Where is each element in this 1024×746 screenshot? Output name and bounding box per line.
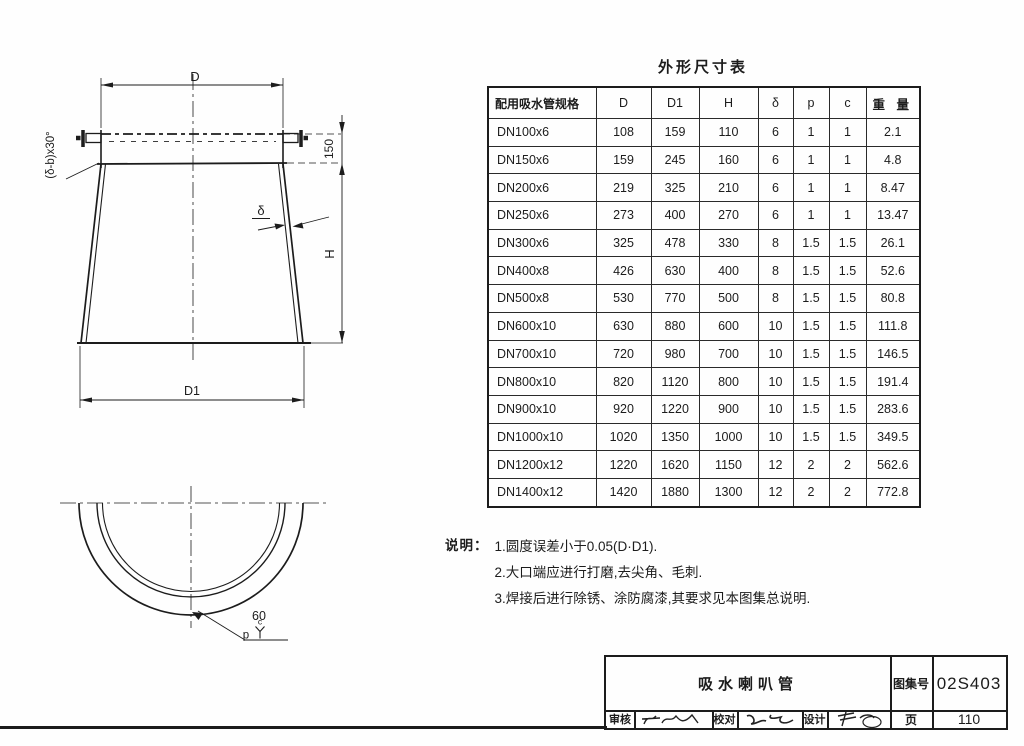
table-cell: 1.5 <box>793 423 829 451</box>
table-cell: 6 <box>758 174 793 202</box>
table-cell: DN900x10 <box>488 395 596 423</box>
table-cell: 1.5 <box>793 312 829 340</box>
table-cell: 400 <box>699 257 758 285</box>
table-cell: 273 <box>596 202 651 230</box>
table-cell: 26.1 <box>866 229 920 257</box>
table-cell: 108 <box>596 119 651 147</box>
table-cell: 13.47 <box>866 202 920 230</box>
design-label: 设计 <box>802 710 827 728</box>
table-cell: 478 <box>651 229 699 257</box>
signature-scribble <box>830 710 888 729</box>
table-cell: 900 <box>699 395 758 423</box>
size-table-body: DN100x61081591106112.1DN150x615924516061… <box>488 119 920 507</box>
table-cell: 12 <box>758 451 793 479</box>
table-cell: 1 <box>793 146 829 174</box>
table-cell: 500 <box>699 285 758 313</box>
signature-scribble <box>638 711 708 728</box>
table-cell: 1150 <box>699 451 758 479</box>
table-cell: DN250x6 <box>488 202 596 230</box>
table-cell: 146.5 <box>866 340 920 368</box>
table-cell: 1620 <box>651 451 699 479</box>
table-cell: 6 <box>758 202 793 230</box>
size-table-header-row: 配用吸水管规格DD1Hδpc重 量 <box>488 87 920 119</box>
table-column-header: D1 <box>651 87 699 119</box>
table-row: DN800x108201120800101.51.5191.4 <box>488 368 920 396</box>
atlas-number-value: 02S403 <box>932 657 1006 710</box>
design-signature <box>827 710 890 728</box>
table-column-header: δ <box>758 87 793 119</box>
left-stub <box>76 130 101 147</box>
table-row: DN200x62193252106118.47 <box>488 174 920 202</box>
table-cell: 8 <box>758 229 793 257</box>
table-cell: 770 <box>651 285 699 313</box>
table-cell: 1 <box>793 202 829 230</box>
table-cell: 159 <box>651 119 699 147</box>
review-signature <box>634 710 712 728</box>
atlas-number-label: 图集号 <box>890 657 932 710</box>
table-cell: 400 <box>651 202 699 230</box>
table-cell: 283.6 <box>866 395 920 423</box>
table-cell: 880 <box>651 312 699 340</box>
table-cell: 1880 <box>651 478 699 506</box>
table-cell: 4.8 <box>866 146 920 174</box>
table-cell: 191.4 <box>866 368 920 396</box>
chamfer-label: (δ-b)x30° <box>45 131 57 178</box>
table-cell: 270 <box>699 202 758 230</box>
table-row: DN300x632547833081.51.526.1 <box>488 229 920 257</box>
table-cell: 1000 <box>699 423 758 451</box>
table-cell: 800 <box>699 368 758 396</box>
table-cell: 1.5 <box>829 312 866 340</box>
table-cell: 1.5 <box>829 423 866 451</box>
page-number: 110 <box>932 710 1006 728</box>
table-cell: 10 <box>758 368 793 396</box>
table-cell: 6 <box>758 119 793 147</box>
table-cell: 1020 <box>596 423 651 451</box>
table-cell: 10 <box>758 340 793 368</box>
table-cell: DN1400x12 <box>488 478 596 506</box>
table-cell: 1 <box>829 174 866 202</box>
table-cell: DN150x6 <box>488 146 596 174</box>
table-column-header: c <box>829 87 866 119</box>
signature-scribble <box>741 711 799 728</box>
table-cell: 1.5 <box>829 368 866 396</box>
notes-block: 说明： 1.圆度误差小于0.05(D·D1).2.大口端应进行打磨,去尖角、毛刺… <box>445 534 810 612</box>
notes-label: 说明： <box>445 534 489 612</box>
table-cell: 1.5 <box>829 340 866 368</box>
dim-label-D: D <box>190 69 199 84</box>
table-cell: 210 <box>699 174 758 202</box>
table-row: DN1400x121420188013001222772.8 <box>488 478 920 506</box>
right-stub <box>283 130 308 147</box>
table-cell: 426 <box>596 257 651 285</box>
table-cell: 720 <box>596 340 651 368</box>
table-column-header: H <box>699 87 758 119</box>
dim-label-D1: D1 <box>184 384 200 398</box>
table-cell: 1.5 <box>793 285 829 313</box>
table-cell: DN400x8 <box>488 257 596 285</box>
table-cell: 1.5 <box>829 257 866 285</box>
table-cell: 2 <box>793 478 829 506</box>
table-cell: 111.8 <box>866 312 920 340</box>
table-cell: 1 <box>829 119 866 147</box>
table-row: DN100x61081591106112.1 <box>488 119 920 147</box>
table-cell: 920 <box>596 395 651 423</box>
table-cell: DN600x10 <box>488 312 596 340</box>
table-row: DN1200x121220162011501222562.6 <box>488 451 920 479</box>
note-item: 1.圆度误差小于0.05(D·D1). <box>495 534 811 560</box>
table-cell: 245 <box>651 146 699 174</box>
table-cell: 980 <box>651 340 699 368</box>
dim-label-150: 150 <box>322 139 336 159</box>
table-cell: 80.8 <box>866 285 920 313</box>
size-table: 配用吸水管规格DD1Hδpc重 量 DN100x61081591106112.1… <box>487 86 921 508</box>
table-cell: 52.6 <box>866 257 920 285</box>
table-cell: 1120 <box>651 368 699 396</box>
table-cell: 10 <box>758 423 793 451</box>
notes-list: 1.圆度误差小于0.05(D·D1).2.大口端应进行打磨,去尖角、毛刺.3.焊… <box>495 534 811 612</box>
table-cell: 630 <box>651 257 699 285</box>
table-cell: 1220 <box>651 395 699 423</box>
check-signature <box>737 710 802 728</box>
table-cell: 6 <box>758 146 793 174</box>
table-row: DN1000x10102013501000101.51.5349.5 <box>488 423 920 451</box>
table-cell: 1.5 <box>793 368 829 396</box>
table-cell: 1.5 <box>793 340 829 368</box>
table-cell: 12 <box>758 478 793 506</box>
table-row: DN400x842663040081.51.552.6 <box>488 257 920 285</box>
table-cell: 330 <box>699 229 758 257</box>
note-item: 2.大口端应进行打磨,去尖角、毛刺. <box>495 560 811 586</box>
table-cell: 1 <box>793 119 829 147</box>
table-cell: 1.5 <box>829 229 866 257</box>
table-cell: 325 <box>651 174 699 202</box>
table-cell: 1 <box>829 202 866 230</box>
table-cell: 160 <box>699 146 758 174</box>
table-column-header: p <box>793 87 829 119</box>
table-cell: 8 <box>758 285 793 313</box>
table-cell: 2 <box>793 451 829 479</box>
table-cell: 8.47 <box>866 174 920 202</box>
table-cell: DN500x8 <box>488 285 596 313</box>
table-cell: 1.5 <box>829 395 866 423</box>
bell-mouth-plan-drawing: 60 p c <box>40 470 340 665</box>
table-row: DN500x853077050081.51.580.8 <box>488 285 920 313</box>
dim-label-delta: δ <box>257 203 264 218</box>
table-cell: 2.1 <box>866 119 920 147</box>
table-cell: 10 <box>758 312 793 340</box>
table-cell: DN1000x10 <box>488 423 596 451</box>
table-cell: 530 <box>596 285 651 313</box>
note-item: 3.焊接后进行除锈、涂防腐漆,其要求见本图集总说明. <box>495 586 811 612</box>
table-cell: 630 <box>596 312 651 340</box>
table-column-header: D <box>596 87 651 119</box>
table-row: DN900x109201220900101.51.5283.6 <box>488 395 920 423</box>
title-block: 吸水喇叭管 图集号 02S403 页 110 审核 校对 设计 <box>604 655 1008 730</box>
table-cell: 219 <box>596 174 651 202</box>
bell-mouth-elevation-drawing: D D1 δ 150 H (δ-b)x30° <box>30 58 390 433</box>
table-cell: 159 <box>596 146 651 174</box>
weld-gap-label: p <box>243 630 249 642</box>
table-cell: 1420 <box>596 478 651 506</box>
table-cell: 2 <box>829 451 866 479</box>
drawing-sheet: D D1 δ 150 H (δ-b)x30° 60 p c 外形尺寸表 <box>0 0 1024 746</box>
table-cell: 820 <box>596 368 651 396</box>
review-label: 审核 <box>606 710 634 728</box>
table-cell: 600 <box>699 312 758 340</box>
cone-outline <box>77 164 311 343</box>
table-row: DN150x61592451606114.8 <box>488 146 920 174</box>
table-cell: 562.6 <box>866 451 920 479</box>
table-cell: 110 <box>699 119 758 147</box>
table-cell: 8 <box>758 257 793 285</box>
table-cell: 1.5 <box>829 285 866 313</box>
table-cell: 1350 <box>651 423 699 451</box>
table-row: DN250x627340027061113.47 <box>488 202 920 230</box>
table-cell: DN700x10 <box>488 340 596 368</box>
size-table-title: 外形尺寸表 <box>487 56 919 77</box>
table-cell: 1 <box>793 174 829 202</box>
table-cell: 10 <box>758 395 793 423</box>
page-label: 页 <box>890 710 932 728</box>
table-column-header: 重 量 <box>866 87 920 119</box>
table-cell: 1220 <box>596 451 651 479</box>
table-cell: DN1200x12 <box>488 451 596 479</box>
table-cell: 1.5 <box>793 229 829 257</box>
dim-label-H: H <box>322 249 337 258</box>
table-cell: 2 <box>829 478 866 506</box>
table-cell: DN200x6 <box>488 174 596 202</box>
table-cell: 772.8 <box>866 478 920 506</box>
table-cell: 1 <box>829 146 866 174</box>
sheet-frame-bottom-line <box>0 726 607 729</box>
table-cell: 700 <box>699 340 758 368</box>
table-row: DN700x10720980700101.51.5146.5 <box>488 340 920 368</box>
table-cell: 349.5 <box>866 423 920 451</box>
table-cell: 1300 <box>699 478 758 506</box>
table-cell: 325 <box>596 229 651 257</box>
table-cell: 1.5 <box>793 395 829 423</box>
table-cell: DN800x10 <box>488 368 596 396</box>
table-column-header: 配用吸水管规格 <box>488 87 596 119</box>
table-row: DN600x10630880600101.51.5111.8 <box>488 312 920 340</box>
check-label: 校对 <box>712 710 737 728</box>
drawing-title: 吸水喇叭管 <box>606 657 890 710</box>
table-cell: DN100x6 <box>488 119 596 147</box>
table-cell: DN300x6 <box>488 229 596 257</box>
table-cell: 1.5 <box>793 257 829 285</box>
